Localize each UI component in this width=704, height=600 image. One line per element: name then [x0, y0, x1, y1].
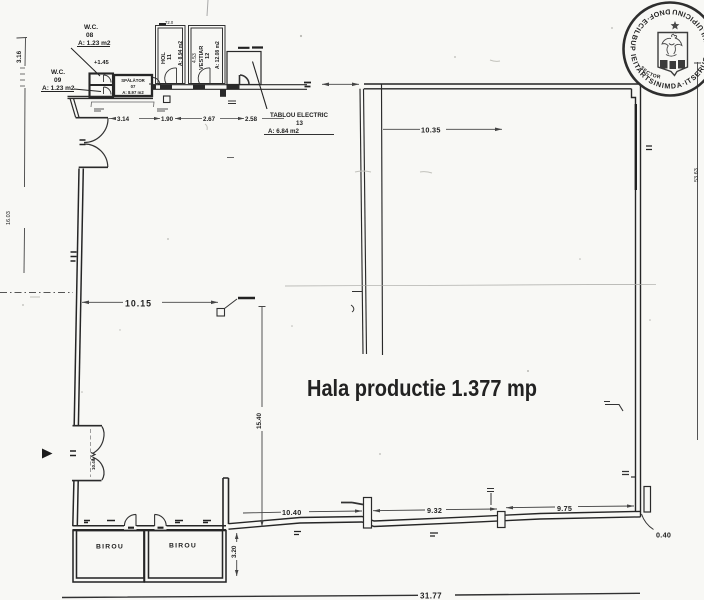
- svg-text:SPĂLĂTOR: SPĂLĂTOR: [121, 78, 145, 83]
- svg-text:W.C.: W.C.: [84, 24, 98, 31]
- svg-text:15.40: 15.40: [256, 413, 263, 429]
- svg-text:A: 1.23 m2: A: 1.23 m2: [42, 85, 75, 92]
- svg-text:3.14: 3.14: [117, 116, 130, 123]
- svg-text:A: 8.94 m2: A: 8.94 m2: [178, 41, 184, 66]
- svg-text:08: 08: [86, 32, 94, 39]
- svg-text:12: 12: [205, 53, 211, 59]
- svg-text:3.16: 3.16: [16, 50, 23, 63]
- svg-text:72.0: 72.0: [165, 20, 174, 25]
- svg-text:Hala productie 1.377 mp: Hala productie 1.377 mp: [307, 375, 537, 401]
- svg-text:BIROU: BIROU: [96, 544, 124, 551]
- svg-text:10.15: 10.15: [125, 299, 152, 309]
- svg-text:A: 8.97 m2: A: 8.97 m2: [122, 90, 144, 95]
- svg-text:9.32: 9.32: [427, 506, 442, 515]
- svg-text:2.67: 2.67: [203, 116, 216, 123]
- svg-text:TABLOU ELECTRIC: TABLOU ELECTRIC: [270, 112, 329, 119]
- svg-text:4.53: 4.53: [192, 53, 198, 63]
- svg-text:31.77: 31.77: [420, 592, 442, 600]
- svg-text:1.90: 1.90: [161, 116, 174, 123]
- svg-text:2.58: 2.58: [245, 116, 258, 123]
- svg-text:16.03: 16.03: [6, 211, 12, 225]
- svg-text:13: 13: [296, 120, 303, 127]
- svg-text:+1.45: +1.45: [94, 60, 109, 66]
- svg-text:09: 09: [54, 77, 62, 84]
- svg-text:9.75: 9.75: [557, 504, 572, 513]
- svg-text:BIROU: BIROU: [169, 543, 197, 550]
- svg-text:11: 11: [167, 54, 173, 60]
- svg-text:A: 12.08 m2: A: 12.08 m2: [215, 41, 221, 69]
- svg-text:10.40: 10.40: [282, 508, 302, 517]
- svg-text:A: 1.23 m2: A: 1.23 m2: [78, 40, 111, 47]
- svg-text:3.20: 3.20: [231, 545, 238, 558]
- svg-text:10.46: 10.46: [91, 458, 96, 470]
- svg-text:0.40: 0.40: [656, 531, 671, 540]
- svg-text:07: 07: [131, 84, 136, 89]
- svg-text:A: 6.84 m2: A: 6.84 m2: [268, 128, 300, 135]
- svg-text:W.C.: W.C.: [51, 69, 65, 76]
- svg-text:10.35: 10.35: [421, 126, 441, 135]
- svg-text:53.63: 53.63: [694, 168, 700, 182]
